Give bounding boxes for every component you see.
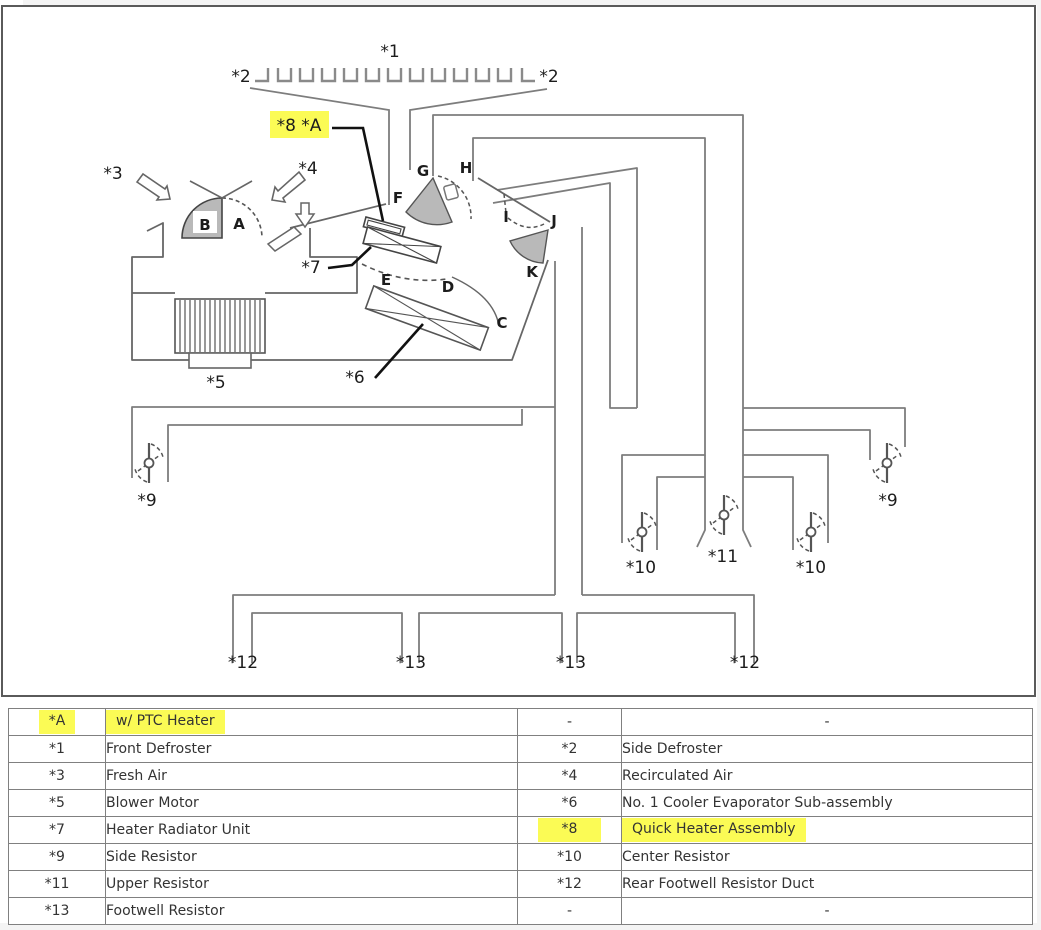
label-upper-resistor: *11	[708, 547, 738, 567]
duct-mid-2	[493, 183, 637, 408]
legend-cell: *13	[9, 898, 106, 925]
legend-cell: *12	[518, 871, 622, 898]
legend-cell: -	[518, 709, 622, 736]
label-side-defroster-left: *2	[231, 67, 250, 87]
legend-cell: -	[622, 709, 1033, 736]
legend-section: *A w/ PTC Heater - - *1 Front Defroster …	[8, 708, 1033, 925]
legend-cell: *6	[518, 790, 622, 817]
legend-cell: -	[622, 898, 1033, 925]
label-blower-motor: *5	[206, 373, 225, 393]
blower-motor	[175, 299, 265, 368]
table-row: *1 Front Defroster *2 Side Defroster	[9, 736, 1033, 763]
legend-cell: Upper Resistor	[106, 871, 518, 898]
label-center-resistor-right: *10	[796, 558, 826, 578]
legend-cell: Side Resistor	[106, 844, 518, 871]
legend-cell: Footwell Resistor	[106, 898, 518, 925]
recirc-door	[268, 227, 301, 251]
table-row: *11 Upper Resistor *12 Rear Footwell Res…	[9, 871, 1033, 898]
fresh-air-arrow	[137, 174, 170, 200]
letter-c: C	[496, 314, 507, 332]
label-side-defroster-right: *2	[539, 67, 558, 87]
highlight: Quick Heater Assembly	[622, 818, 806, 842]
label-side-resistor-right: *9	[878, 491, 897, 511]
letter-h: H	[460, 159, 473, 177]
letter-b: B	[199, 216, 210, 234]
duct-mid-1	[497, 168, 637, 408]
highlight: *A	[39, 710, 76, 734]
floor-manifold	[233, 595, 754, 663]
label-fresh-air: *3	[103, 164, 122, 184]
callout-8a-label: *8 *A	[277, 116, 322, 136]
floor-manifold-u1	[252, 613, 402, 663]
legend-cell: No. 1 Cooler Evaporator Sub-assembly	[622, 790, 1033, 817]
table-row: *7 Heater Radiator Unit *8 Quick Heater …	[9, 817, 1033, 844]
highlight: w/ PTC Heater	[106, 710, 225, 734]
label-footwell-resistor-right: *13	[556, 653, 586, 673]
center-duct-flare-right	[743, 455, 751, 547]
left-plenum-outer	[132, 407, 555, 478]
letter-e: E	[381, 271, 391, 289]
letter-d: D	[442, 278, 454, 296]
legend-cell: Side Defroster	[622, 736, 1033, 763]
label-heater-radiator: *7	[301, 258, 320, 278]
evaporator	[366, 286, 489, 350]
label-recirculated-air: *4	[298, 159, 317, 179]
center-resistor-right-symbol	[797, 512, 825, 552]
legend-cell: -	[518, 898, 622, 925]
letter-i: I	[503, 208, 509, 226]
legend-cell: Quick Heater Assembly	[622, 817, 1033, 844]
legend-cell: *2	[518, 736, 622, 763]
legend-table: *A w/ PTC Heater - - *1 Front Defroster …	[8, 708, 1033, 925]
center-resistor-left-symbol	[628, 512, 656, 552]
floor-manifold-u2	[419, 613, 562, 663]
table-row: *5 Blower Motor *6 No. 1 Cooler Evaporat…	[9, 790, 1033, 817]
side-resistor-right-symbol	[873, 443, 901, 483]
label-front-defroster: *1	[380, 42, 399, 62]
table-row: *13 Footwell Resistor - -	[9, 898, 1033, 925]
upper-resistor-symbol	[710, 495, 738, 535]
label-footwell-resistor-left: *13	[396, 653, 426, 673]
legend-cell: *10	[518, 844, 622, 871]
legend-cell: Recirculated Air	[622, 763, 1033, 790]
mode-damper-f	[406, 178, 452, 225]
pointer-evaporator	[375, 324, 423, 378]
label-evaporator: *6	[345, 368, 364, 388]
legend-cell: *5	[9, 790, 106, 817]
label-rear-footwell-duct-right: *12	[730, 653, 760, 673]
label-rear-footwell-duct-left: *12	[228, 653, 258, 673]
legend-cell: Front Defroster	[106, 736, 518, 763]
table-row: *3 Fresh Air *4 Recirculated Air	[9, 763, 1033, 790]
legend-cell: *A	[9, 709, 106, 736]
table-row: *9 Side Resistor *10 Center Resistor	[9, 844, 1033, 871]
table-row: *A w/ PTC Heater - -	[9, 709, 1033, 736]
defroster-funnel-right	[410, 89, 547, 170]
damper-ij-swing-arc	[508, 218, 544, 227]
center-duct-inner-left	[657, 477, 705, 550]
page-right-strip	[1037, 0, 1041, 930]
duct-right-branch-outer	[743, 408, 905, 447]
legend-cell: Fresh Air	[106, 763, 518, 790]
center-duct-flare-left	[697, 455, 705, 547]
hvac-airflow-diagram: *8 *A *1 *2 *2 *3 *4 *5 *6 *7 *9 *9 *10 …	[3, 7, 1034, 695]
blower-base	[189, 353, 251, 368]
letter-j: J	[550, 212, 557, 230]
legend-cell: *3	[9, 763, 106, 790]
highlight: *8	[538, 818, 602, 842]
airmix-swing-arc	[362, 264, 447, 280]
side-resistor-left-symbol	[135, 443, 163, 483]
label-center-resistor-left: *10	[626, 558, 656, 578]
left-plenum-inner	[168, 409, 522, 482]
letter-g: G	[417, 162, 429, 180]
front-defroster-vents	[255, 68, 535, 81]
letter-a: A	[233, 215, 245, 233]
legend-cell: *1	[9, 736, 106, 763]
legend-cell: *4	[518, 763, 622, 790]
intake-pivot-lines	[190, 181, 252, 198]
legend-cell: *8	[518, 817, 622, 844]
letter-k: K	[526, 263, 539, 281]
label-side-resistor-left: *9	[137, 491, 156, 511]
legend-cell: Heater Radiator Unit	[106, 817, 518, 844]
legend-cell: *11	[9, 871, 106, 898]
legend-cell: Center Resistor	[622, 844, 1033, 871]
letter-f: F	[393, 189, 403, 207]
center-duct-inner-right	[743, 477, 793, 550]
duct-inner-right	[473, 138, 705, 543]
floor-manifold-u3	[577, 613, 735, 663]
damper-g-pivot	[443, 184, 458, 201]
legend-cell: Blower Motor	[106, 790, 518, 817]
legend-cell: Rear Footwell Resistor Duct	[622, 871, 1033, 898]
legend-cell: *7	[9, 817, 106, 844]
legend-cell: *9	[9, 844, 106, 871]
legend-cell: w/ PTC Heater	[106, 709, 518, 736]
duct-outer-right	[433, 115, 828, 543]
hvac-diagram-frame: *8 *A *1 *2 *2 *3 *4 *5 *6 *7 *9 *9 *10 …	[1, 5, 1036, 697]
unit-upper-right-edge	[478, 178, 550, 222]
mode-damper-k	[510, 230, 548, 263]
